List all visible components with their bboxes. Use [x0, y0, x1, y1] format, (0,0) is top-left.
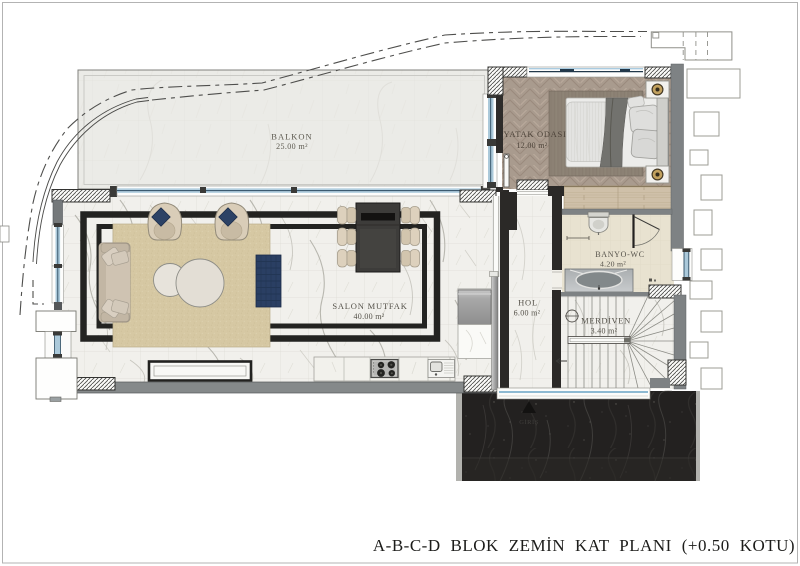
svg-text:40.00 m²: 40.00 m²	[353, 312, 384, 321]
svg-text:YATAK ODASI: YATAK ODASI	[504, 129, 567, 139]
svg-text:12.00 m²: 12.00 m²	[516, 141, 547, 150]
svg-text:6.00 m²: 6.00 m²	[514, 309, 541, 318]
svg-text:25.00 m²: 25.00 m²	[276, 142, 308, 151]
svg-text:SALON MUTFAK: SALON MUTFAK	[332, 301, 407, 311]
svg-text:BALKON: BALKON	[271, 132, 312, 142]
svg-text:4.20 m²: 4.20 m²	[600, 260, 626, 269]
svg-text:A-B-C-D BLOK ZEMİN KAT PLANI (: A-B-C-D BLOK ZEMİN KAT PLANI (+0.50 KOTU…	[373, 536, 795, 555]
svg-text:3.40 m²: 3.40 m²	[591, 327, 618, 336]
svg-text:HOL: HOL	[518, 298, 538, 308]
svg-text:MERDİVEN: MERDİVEN	[581, 316, 631, 326]
svg-text:GİRİŞ: GİRİŞ	[519, 419, 538, 426]
svg-text:BANYO-WC: BANYO-WC	[595, 250, 645, 259]
